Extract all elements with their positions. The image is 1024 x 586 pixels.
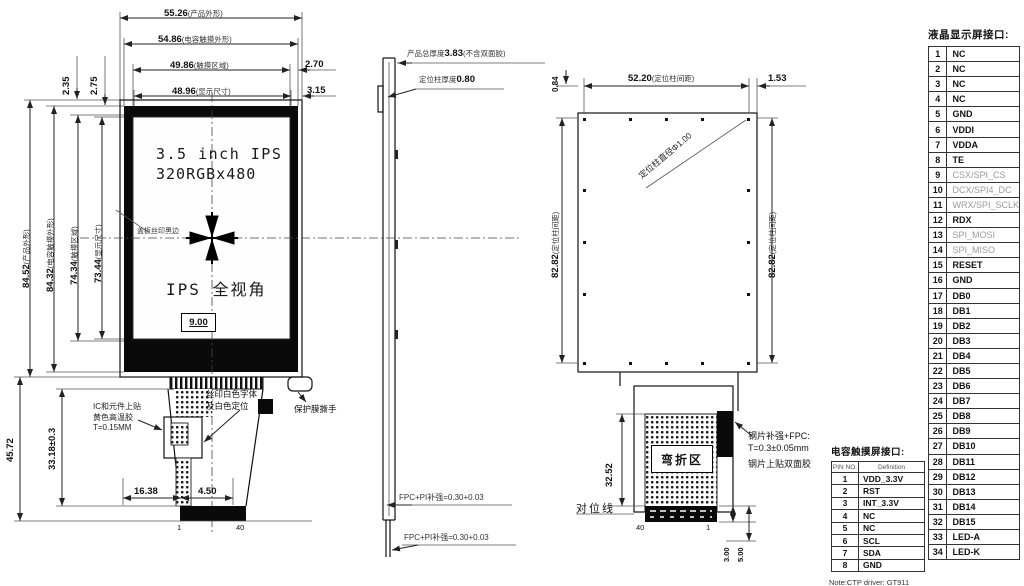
lcd-pin-row: 30 DB13 <box>929 484 1020 499</box>
fpc-stackup-note-top: FPC+PI补强=0.30+0.03 <box>399 492 484 503</box>
gold-finger-contacts <box>180 506 246 521</box>
lcd-pin-row: 3 NC <box>929 77 1020 92</box>
lcd-pin-row: 11 WRX/SPI_SCLK <box>929 197 1020 212</box>
touch-pin-row: 5 NC <box>832 522 925 534</box>
dim-post-pitch-v-right: 82.82(定位柱间距) <box>762 212 780 278</box>
lcd-pin-name: VDDA <box>947 137 1020 152</box>
lcd-pin-name: CSX/SPI_CS <box>947 167 1020 182</box>
touch-pin-number: 3 <box>832 497 859 509</box>
lcd-pin-row: 33 LED-A <box>929 530 1020 545</box>
thickness-note: 产品总厚度3.83(不含双面胶) <box>407 48 506 59</box>
dim-corner-275: 2.75 <box>89 77 100 96</box>
lcd-pin-number: 30 <box>929 484 947 499</box>
lcd-pin-number: 7 <box>929 137 947 152</box>
lcd-pin-row: 5 GND <box>929 107 1020 122</box>
lcd-pin-number: 1 <box>929 47 947 62</box>
touch-pin-row: 1 VDD_3.3V <box>832 473 925 485</box>
alignment-line-label: 对位线 <box>576 500 615 516</box>
lcd-pin-name: DB1 <box>947 303 1020 318</box>
lcd-pin-name: DB14 <box>947 499 1020 514</box>
touch-pin-row: 3 INT_3.3V <box>832 497 925 509</box>
lcd-pin-row: 26 DB9 <box>929 424 1020 439</box>
dim-edge-153: 1.53 <box>768 73 787 84</box>
screen-panel-type-text: IPS 全视角 <box>166 276 267 300</box>
lcd-pin-name: DB9 <box>947 424 1020 439</box>
dim-touch-area-width: 49.86(触摸区域) <box>170 60 229 71</box>
lcd-pin-number: 2 <box>929 62 947 77</box>
lcd-pin-name: DB5 <box>947 363 1020 378</box>
dim-corner-235: 2.35 <box>61 77 72 96</box>
touch-pin-row: 8 GND <box>832 559 925 571</box>
lcd-pin-name: WRX/SPI_SCLK <box>947 197 1020 212</box>
lcd-pin-row: 34 LED-K <box>929 545 1020 560</box>
lcd-pin-row: 24 DB7 <box>929 394 1020 409</box>
lcd-pin-row: 13 SPI_MOSI <box>929 228 1020 243</box>
touch-pin-number: 6 <box>832 534 859 546</box>
dim-offset-315: 3.15 <box>307 85 326 96</box>
touch-pin-row: 2 RST <box>832 485 925 497</box>
white-silkscreen-mark <box>258 399 273 414</box>
touch-pin-number: 8 <box>832 559 859 571</box>
lcd-pin-number: 26 <box>929 424 947 439</box>
silkscreen-note-line2: 及白色定位 <box>206 400 249 412</box>
lcd-pin-name: GND <box>947 273 1020 288</box>
lcd-pin-number: 23 <box>929 379 947 394</box>
fpc-stackup-note-bottom: FPC+PI补强=0.30+0.03 <box>404 532 489 543</box>
lcd-pin-name: DB6 <box>947 379 1020 394</box>
dim-tail-height: 33.18±0.3 <box>47 428 58 470</box>
lcd-pin-name: DB10 <box>947 439 1020 454</box>
pin1-label: 1 <box>177 523 181 532</box>
lcd-pin-row: 23 DB6 <box>929 379 1020 394</box>
lcd-pin-row: 16 GND <box>929 273 1020 288</box>
touch-pin-name: SDA <box>859 547 925 559</box>
lcd-pin-row: 27 DB10 <box>929 439 1020 454</box>
lcd-pin-name: NC <box>947 47 1020 62</box>
lcd-pin-name: DB13 <box>947 484 1020 499</box>
touch-pin-name: GND <box>859 559 925 571</box>
film-tab-note: 保护膜撕手 <box>294 403 337 415</box>
touch-pin-number: 2 <box>832 485 859 497</box>
lcd-pin-number: 14 <box>929 243 947 258</box>
pin40-label: 40 <box>236 523 244 532</box>
touch-pin-number: 4 <box>832 510 859 522</box>
lcd-pin-name: VDDI <box>947 122 1020 137</box>
lcd-pin-name: RESET <box>947 258 1020 273</box>
touch-pin-name: NC <box>859 510 925 522</box>
lcd-pin-name: LED-A <box>947 530 1020 545</box>
lcd-pin-number: 12 <box>929 213 947 228</box>
touch-pin-number: 1 <box>832 473 859 485</box>
lcd-pin-name: DB3 <box>947 333 1020 348</box>
lcd-pin-name: DB4 <box>947 348 1020 363</box>
lcd-pin-row: 15 RESET <box>929 258 1020 273</box>
lcd-pin-number: 20 <box>929 333 947 348</box>
lcd-pin-row: 20 DB3 <box>929 333 1020 348</box>
lcd-pin-row: 6 VDDI <box>929 122 1020 137</box>
steel-stiffener <box>717 411 733 457</box>
lcd-pin-number: 33 <box>929 530 947 545</box>
side-view-profile <box>378 58 398 557</box>
lcd-pin-row: 29 DB12 <box>929 469 1020 484</box>
dim-tail-500: 5.00 <box>736 547 745 562</box>
lcd-pin-row: 17 DB0 <box>929 288 1020 303</box>
lcd-pin-row: 1 NC <box>929 47 1020 62</box>
lcd-pin-row: 8 TE <box>929 152 1020 167</box>
lcd-pin-row: 19 DB2 <box>929 318 1020 333</box>
lcd-pin-row: 2 NC <box>929 62 1020 77</box>
dim-display-width: 48.96(显示尺寸) <box>172 86 231 97</box>
lcd-pin-number: 32 <box>929 514 947 529</box>
lcd-pin-name: SPI_MOSI <box>947 228 1020 243</box>
lcd-pin-row: 22 DB5 <box>929 363 1020 378</box>
touch-table-header: PIN NO. Definition <box>832 462 925 473</box>
dim-product-width: 55.26(产品外形) <box>164 8 223 19</box>
lcd-pin-number: 17 <box>929 288 947 303</box>
lcd-pin-name: DB12 <box>947 469 1020 484</box>
lcd-pin-number: 10 <box>929 182 947 197</box>
lcd-pin-number: 15 <box>929 258 947 273</box>
touch-col-def: Definition <box>859 462 925 473</box>
lcd-pin-row: 31 DB14 <box>929 499 1020 514</box>
lcd-pin-row: 14 SPI_MISO <box>929 243 1020 258</box>
lcd-pin-number: 18 <box>929 303 947 318</box>
lcd-pin-number: 31 <box>929 499 947 514</box>
dim-tail-300: 3.00 <box>722 547 731 562</box>
lcd-pin-row: 7 VDDA <box>929 137 1020 152</box>
dim-offset-270: 2.70 <box>305 59 324 70</box>
touch-pin-number: 7 <box>832 547 859 559</box>
post-thickness-note: 定位柱厚度0.80 <box>419 74 475 85</box>
touch-pin-row: 7 SDA <box>832 547 925 559</box>
lcd-pin-number: 9 <box>929 167 947 182</box>
lcd-pin-name: TE <box>947 152 1020 167</box>
screen-size-text: 3.5 inch IPS <box>156 145 282 163</box>
lcd-pin-number: 22 <box>929 363 947 378</box>
lcd-pin-row: 25 DB8 <box>929 409 1020 424</box>
lcd-pin-number: 27 <box>929 439 947 454</box>
touch-pin-row: 4 NC <box>832 510 925 522</box>
back-contacts <box>645 506 717 522</box>
touch-pin-name: SCL <box>859 534 925 546</box>
lcd-pin-number: 5 <box>929 107 947 122</box>
lcd-pin-number: 19 <box>929 318 947 333</box>
lcd-pin-row: 12 RDX <box>929 213 1020 228</box>
touch-interface-table: 电容触摸屏接口: PIN NO. Definition 1 VDD_3.3V 2… <box>831 444 927 572</box>
touch-pin-name: NC <box>859 522 925 534</box>
lcd-module-drawing: 55.26(产品外形) 54.86(电容触摸外形) 49.86(触摸区域) 48… <box>0 0 1024 586</box>
lcd-pin-number: 28 <box>929 454 947 469</box>
ic-note-line2: 黄色高温胶 <box>93 412 133 423</box>
touch-pin-number: 5 <box>832 522 859 534</box>
lcd-pin-name: DB11 <box>947 454 1020 469</box>
silkscreen-note-line1: 丝印白色字体 <box>206 388 257 400</box>
lcd-pin-name: NC <box>947 62 1020 77</box>
lcd-pin-name: LED-K <box>947 545 1020 560</box>
lcd-pin-number: 29 <box>929 469 947 484</box>
lcd-pin-number: 24 <box>929 394 947 409</box>
lcd-pin-number: 34 <box>929 545 947 560</box>
lcd-pin-name: RDX <box>947 213 1020 228</box>
lcd-pin-row: 9 CSX/SPI_CS <box>929 167 1020 182</box>
protective-film-tab <box>288 377 312 391</box>
dim-fpc-left: 16.38 <box>134 486 158 497</box>
silk-edge-note: 盖板丝印黑边 <box>137 226 179 236</box>
lcd-pin-row: 32 DB15 <box>929 514 1020 529</box>
touch-pin-name: RST <box>859 485 925 497</box>
dim-product-height: 84.52(产品外形) <box>16 229 34 288</box>
lcd-pin-number: 8 <box>929 152 947 167</box>
lcd-table-title: 液晶显示屏接口: <box>928 27 1022 42</box>
bend-zone-label: 弯折区 <box>651 445 713 473</box>
touch-pin-name: INT_3.3V <box>859 497 925 509</box>
dim-tail-total-height: 45.72 <box>5 438 16 462</box>
lcd-pin-number: 6 <box>929 122 947 137</box>
touch-pin-row: 6 SCL <box>832 534 925 546</box>
lcd-pin-name: DB2 <box>947 318 1020 333</box>
lcd-interface-table: 液晶显示屏接口: 1 NC 2 NC 3 NC 4 NC 5 GND <box>928 27 1022 560</box>
stiffener-note-line2: T=0.3±0.05mm <box>748 443 809 453</box>
ctp-driver-note: Note:CTP driver: GT911 <box>829 578 909 586</box>
screen-resolution-text: 320RGBx480 <box>156 165 256 183</box>
lcd-pin-number: 11 <box>929 197 947 212</box>
lcd-pin-name: SPI_MISO <box>947 243 1020 258</box>
lcd-pin-row: 28 DB11 <box>929 454 1020 469</box>
back-pin1-label: 1 <box>706 523 710 532</box>
lcd-pin-row: 10 DCX/SPI4_DC <box>929 182 1020 197</box>
lcd-pin-number: 21 <box>929 348 947 363</box>
lcd-pin-name: GND <box>947 107 1020 122</box>
lcd-pin-name: NC <box>947 92 1020 107</box>
lcd-pin-row: 21 DB4 <box>929 348 1020 363</box>
touch-col-pin: PIN NO. <box>832 462 859 473</box>
center-dim-box: 9.00 <box>181 313 216 332</box>
touch-pin-name: VDD_3.3V <box>859 473 925 485</box>
ic-note-line1: IC和元件上贴 <box>93 401 141 412</box>
lcd-pin-name: DB0 <box>947 288 1020 303</box>
lcd-pin-name: DB8 <box>947 409 1020 424</box>
dim-post-pitch-h: 52.20(定位柱间距) <box>628 73 694 84</box>
dim-touch-width: 54.86(电容触摸外形) <box>158 34 232 45</box>
lcd-pin-name: DB7 <box>947 394 1020 409</box>
back-pin40-label: 40 <box>636 523 644 532</box>
lcd-pin-number: 16 <box>929 273 947 288</box>
lcd-pin-number: 3 <box>929 77 947 92</box>
lcd-pin-row: 18 DB1 <box>929 303 1020 318</box>
lcd-pin-row: 4 NC <box>929 92 1020 107</box>
dim-touch-height: 84.32(电容触摸外形) <box>40 218 58 292</box>
stiffener-note-line1: 钢片补强+FPC: <box>748 429 810 442</box>
lcd-pin-name: NC <box>947 77 1020 92</box>
dim-post-pitch-v-left: 82.82(定位柱间距) <box>545 212 563 278</box>
dim-touch-area-height: 74.34(触摸区域) <box>64 226 82 285</box>
dim-bend-length: 32.52 <box>604 463 615 487</box>
ic-note-line3: T=0.15MM <box>93 423 131 432</box>
dim-display-height: 73.44(显示尺寸) <box>88 224 106 283</box>
lcd-pin-number: 4 <box>929 92 947 107</box>
touch-table-title: 电容触摸屏接口: <box>831 444 927 458</box>
stiffener-note-line3: 钢片上贴双面胶 <box>748 457 811 470</box>
lcd-pin-number: 25 <box>929 409 947 424</box>
lcd-pin-name: DB15 <box>947 514 1020 529</box>
dim-top-084: 0.84 <box>551 76 560 92</box>
lcd-pin-name: DCX/SPI4_DC <box>947 182 1020 197</box>
dim-fpc-right: 4.50 <box>198 486 217 497</box>
lcd-pin-number: 13 <box>929 228 947 243</box>
